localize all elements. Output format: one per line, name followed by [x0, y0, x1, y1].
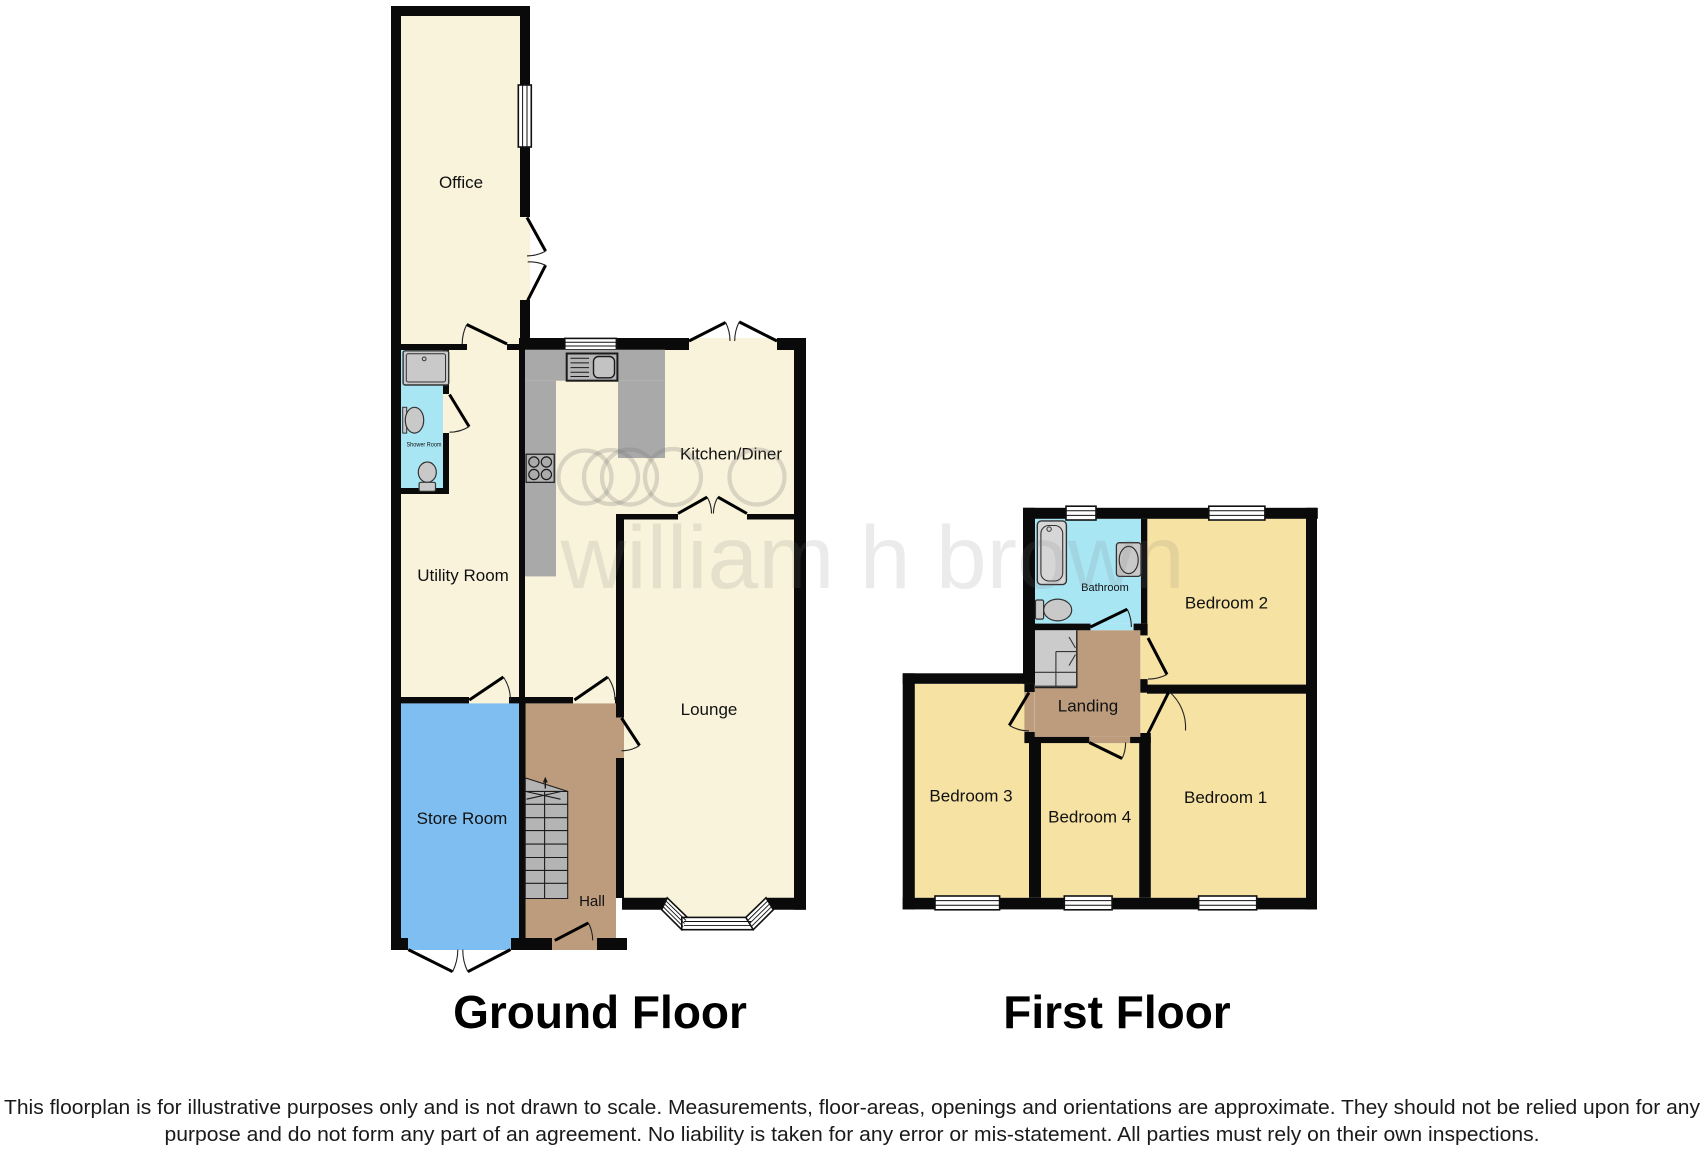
svg-text:Office: Office: [439, 173, 483, 192]
svg-text:Bedroom 4: Bedroom 4: [1048, 808, 1131, 827]
svg-text:First Floor: First Floor: [1003, 986, 1231, 1038]
svg-text:Bedroom 1: Bedroom 1: [1184, 788, 1267, 807]
svg-text:william h brown: william h brown: [559, 507, 1184, 607]
svg-text:purpose and do not form any pa: purpose and do not form any part of an a…: [165, 1123, 1540, 1146]
svg-text:Store Room: Store Room: [417, 809, 508, 828]
svg-text:Bedroom 3: Bedroom 3: [929, 787, 1012, 806]
svg-text:Landing: Landing: [1058, 697, 1119, 716]
svg-text:Bedroom 2: Bedroom 2: [1185, 594, 1268, 613]
svg-text:This floorplan is for illustra: This floorplan is for illustrative purpo…: [4, 1096, 1701, 1119]
svg-text:Shower Room: Shower Room: [407, 442, 442, 448]
svg-text:Utility Room: Utility Room: [417, 566, 509, 585]
svg-text:Hall: Hall: [579, 893, 605, 910]
svg-text:Lounge: Lounge: [681, 700, 738, 719]
svg-text:Ground Floor: Ground Floor: [453, 986, 747, 1038]
